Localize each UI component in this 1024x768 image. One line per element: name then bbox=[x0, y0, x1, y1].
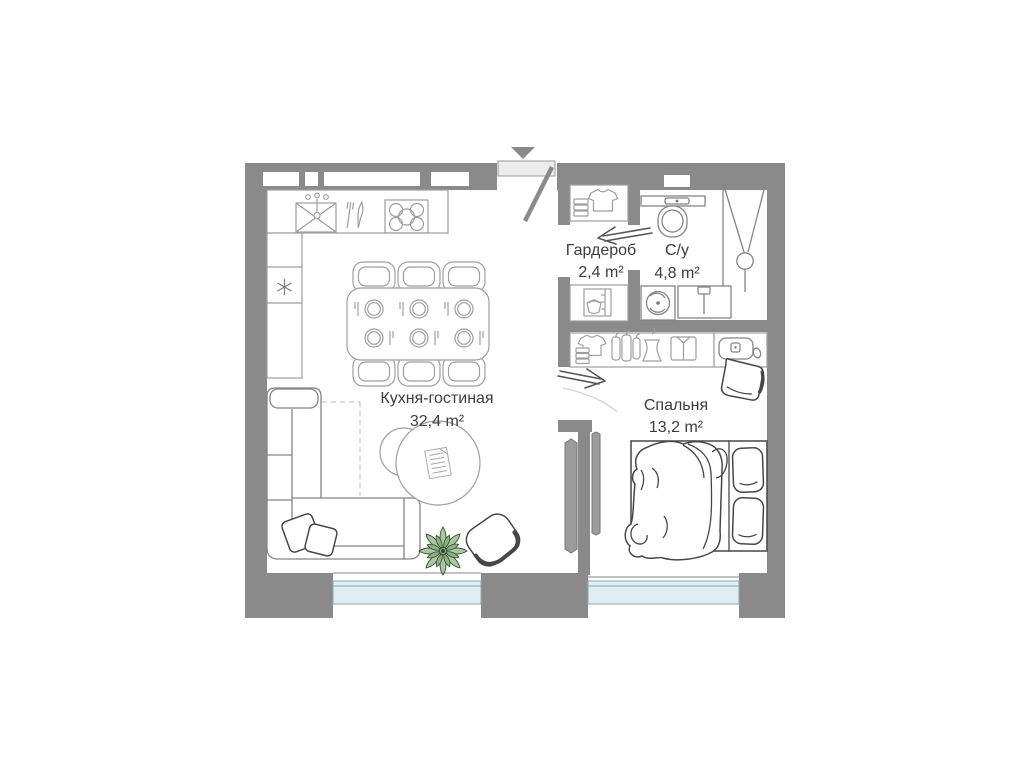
room-label-bedroom: Спальня bbox=[644, 397, 708, 414]
room-label-kitchen-living: Кухня-гостиная bbox=[380, 390, 493, 407]
pillow bbox=[732, 497, 764, 544]
wall-wardrobe-left-top bbox=[558, 185, 570, 225]
shower-icon bbox=[723, 185, 765, 292]
dining-set bbox=[347, 262, 489, 386]
wall-bedroom-west-stub bbox=[558, 332, 570, 367]
tv-icon bbox=[592, 432, 600, 535]
wall-niche bbox=[664, 175, 690, 187]
room-area-kitchen-living: 32,4 m² bbox=[410, 413, 465, 430]
blanket bbox=[625, 441, 727, 559]
room-label-bathroom: С/у bbox=[665, 242, 689, 259]
room-label-wardrobe: Гардероб bbox=[566, 242, 636, 259]
bathroom bbox=[641, 185, 765, 320]
wall-wardrobe-right-bottom bbox=[628, 270, 640, 322]
floor-plan-svg: Кухня-гостиная 32,4 m² Гардероб 2,4 m² С… bbox=[0, 0, 1024, 768]
coffee-table bbox=[380, 421, 480, 505]
room-area-bedroom: 13,2 m² bbox=[649, 419, 704, 436]
window-bedroom bbox=[588, 581, 739, 604]
wall-niche bbox=[324, 172, 420, 186]
entry-arrow-icon bbox=[511, 147, 535, 159]
armchair bbox=[461, 509, 524, 571]
wall-niche bbox=[263, 172, 299, 186]
wall-wardrobe-left-bottom bbox=[558, 277, 570, 322]
wall-bedroom-north bbox=[558, 320, 785, 332]
window-living bbox=[333, 581, 481, 604]
kitchen-counter bbox=[267, 190, 448, 233]
kitchen-counter-column bbox=[267, 233, 302, 378]
wall-niche bbox=[305, 172, 318, 186]
sliding-door-arrow-icon bbox=[558, 369, 617, 412]
wall-wardrobe-right-top bbox=[628, 185, 640, 225]
wall-pier-left bbox=[245, 573, 333, 618]
entrance bbox=[498, 147, 555, 221]
magazine-icon bbox=[425, 447, 452, 478]
room-area-bathroom: 4,8 m² bbox=[654, 265, 700, 282]
folded-stack-icon bbox=[574, 199, 588, 216]
plant-icon bbox=[419, 527, 467, 575]
bathroom-sink-icon bbox=[678, 286, 731, 318]
cushion bbox=[304, 523, 338, 557]
pillow bbox=[732, 447, 764, 492]
floor-plan-page: Кухня-гостиная 32,4 m² Гардероб 2,4 m² С… bbox=[0, 0, 1024, 768]
nightstand bbox=[719, 338, 753, 359]
wall-niche bbox=[431, 172, 469, 186]
wall-pier-right bbox=[739, 573, 785, 618]
washing-machine-icon bbox=[641, 286, 675, 320]
wall-partition-living-bedroom bbox=[578, 420, 590, 575]
wall-pier-middle bbox=[481, 573, 588, 618]
tv-icon bbox=[565, 439, 577, 553]
bed bbox=[625, 441, 767, 560]
toilet-icon bbox=[641, 196, 705, 237]
wall-left bbox=[245, 163, 267, 618]
room-area-wardrobe: 2,4 m² bbox=[578, 264, 624, 281]
dining-table bbox=[347, 288, 489, 360]
wall-right bbox=[767, 163, 785, 618]
rug-outline bbox=[322, 402, 360, 496]
